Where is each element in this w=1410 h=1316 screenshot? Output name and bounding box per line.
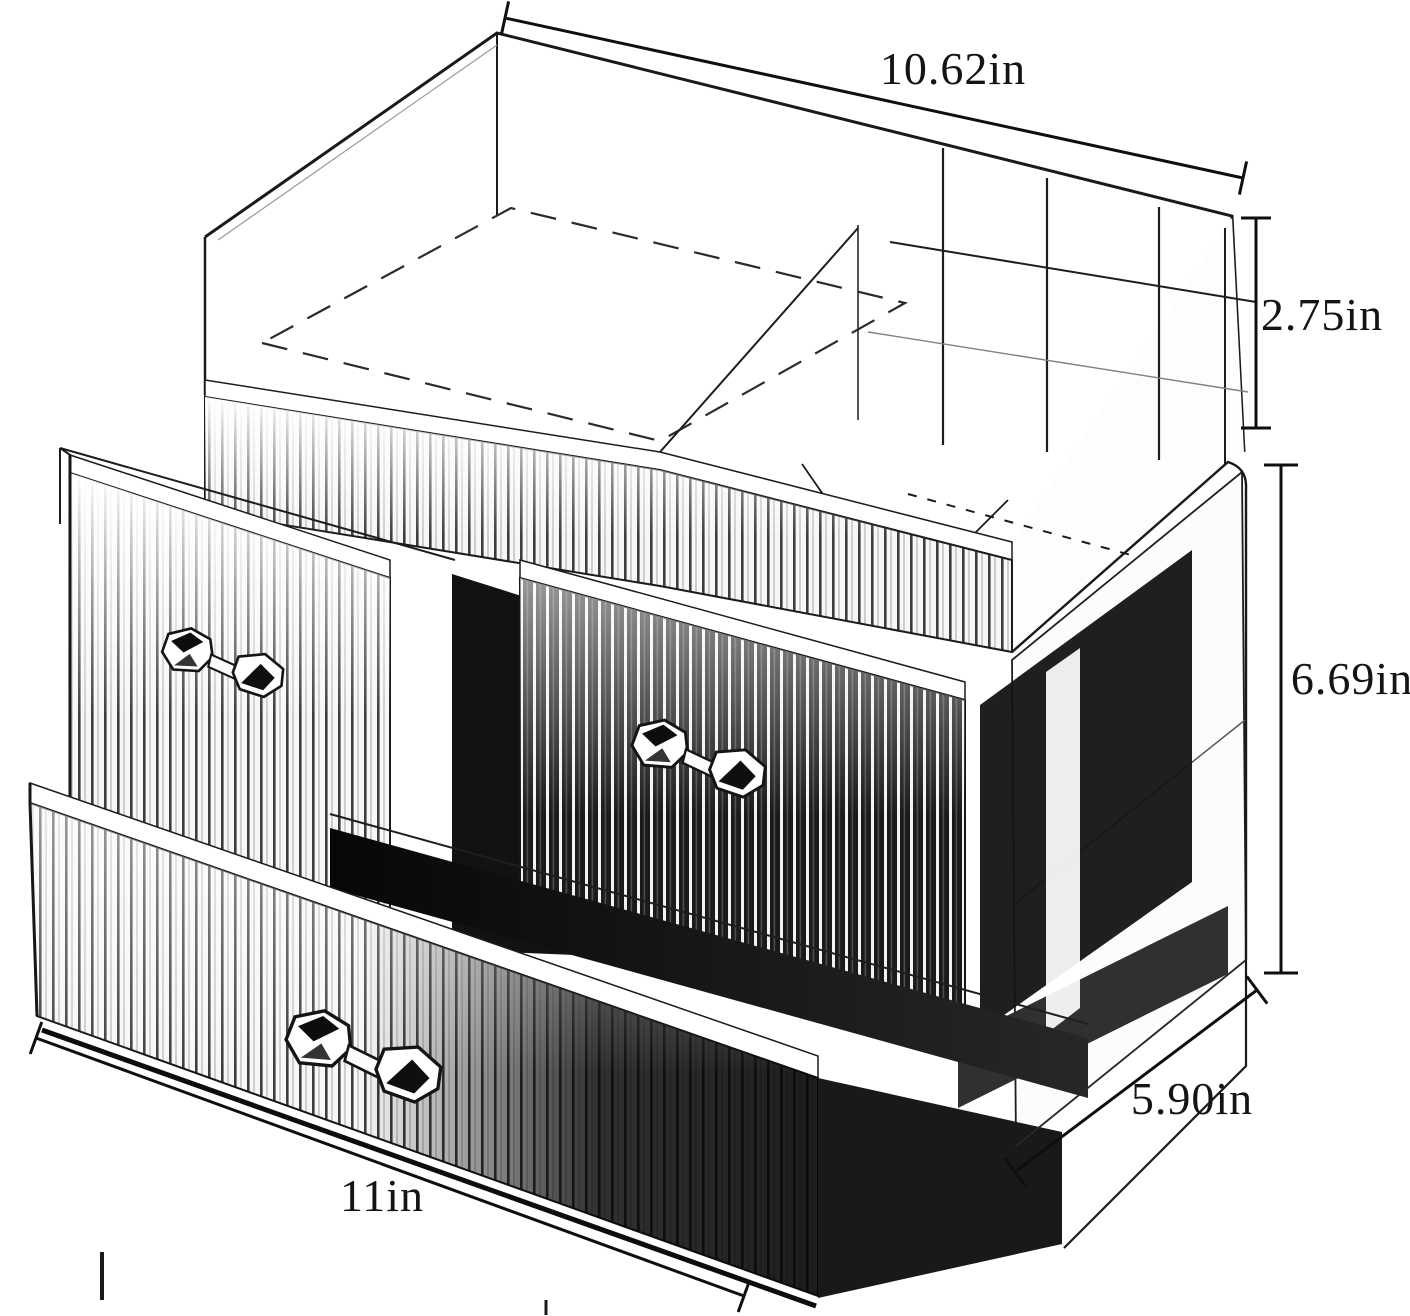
dimension-label-bottom-width: 11in bbox=[340, 1173, 424, 1219]
dimension-label-top-width: 10.62in bbox=[880, 46, 1026, 92]
dimension-label-depth: 5.90in bbox=[1131, 1076, 1253, 1122]
dimension-line-body-height bbox=[1264, 465, 1298, 973]
left-wall-inner-edge bbox=[218, 45, 497, 240]
acrylic-reflection-streak bbox=[1046, 648, 1080, 1034]
dimension-diagram: 10.62in 2.75in 6.69in 5.90in 11in bbox=[0, 0, 1410, 1316]
dimension-label-top-height: 2.75in bbox=[1261, 292, 1383, 338]
dimension-line-top-width bbox=[501, 1, 1246, 194]
dimension-label-body-height: 6.69in bbox=[1291, 656, 1410, 702]
